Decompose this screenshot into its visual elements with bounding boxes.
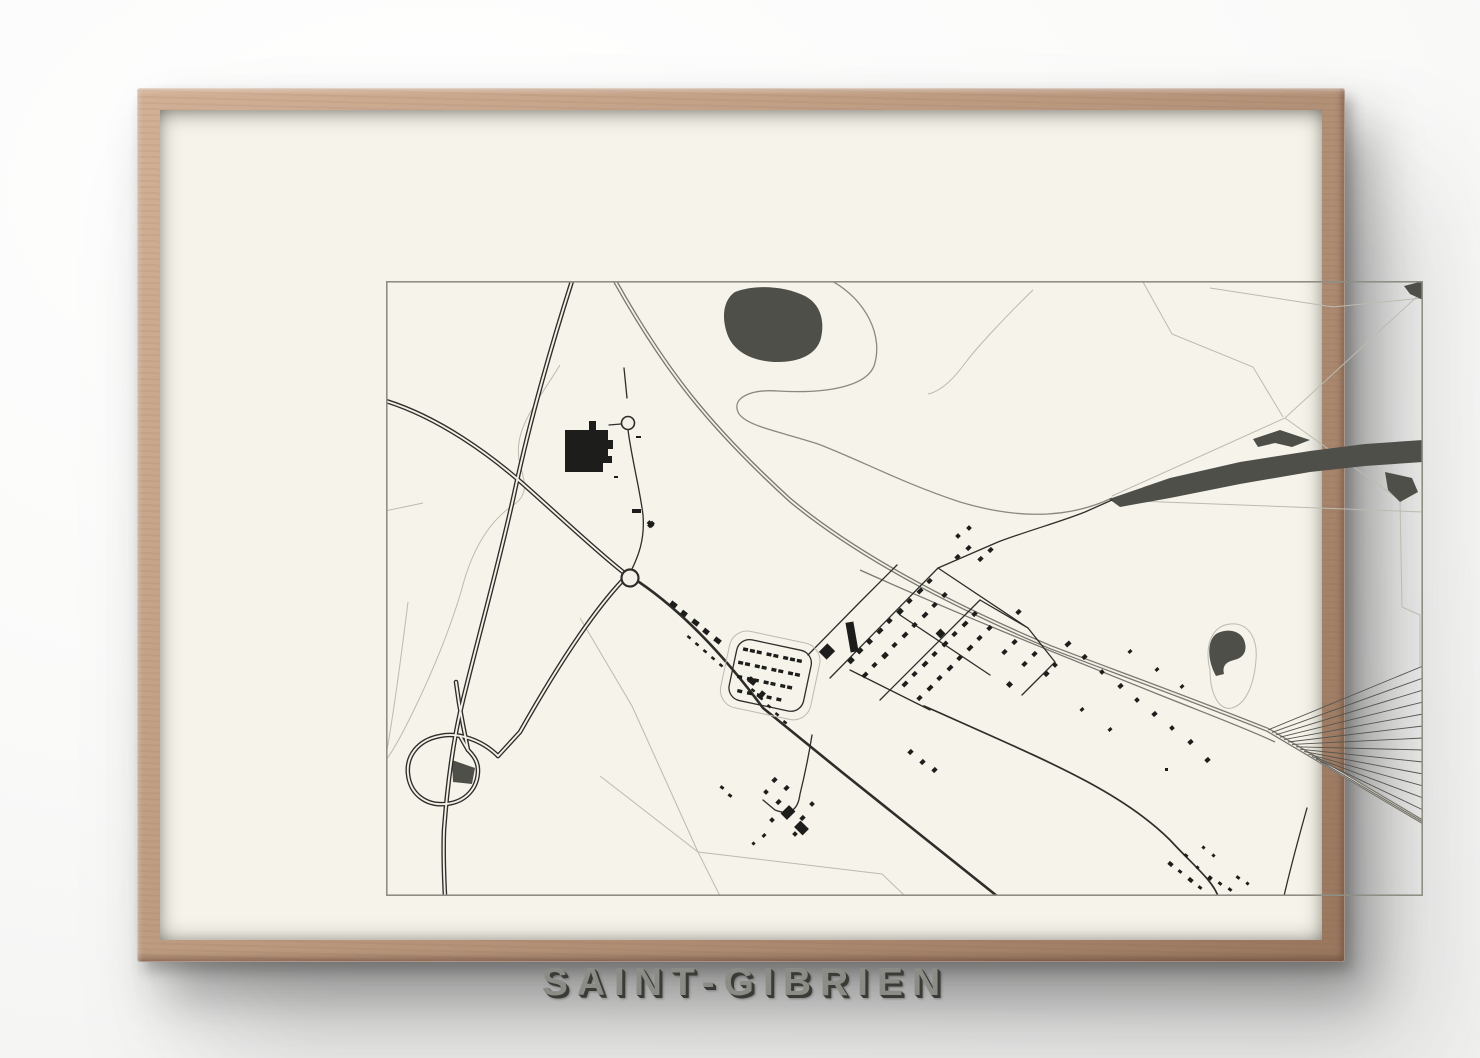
highway xyxy=(444,281,572,896)
road-northwest xyxy=(386,401,623,572)
map-svg xyxy=(386,281,1423,896)
factory-access xyxy=(628,430,643,571)
poster-title: SAINT-GIBRIEN xyxy=(160,961,1322,1005)
map-print xyxy=(386,281,1423,896)
yard-boundary-road xyxy=(1284,808,1307,896)
roundabout xyxy=(622,570,639,587)
wall: SAINT-GIBRIEN xyxy=(0,0,1480,1058)
mini-roundabout xyxy=(622,417,635,430)
roads-major xyxy=(386,281,623,896)
housing-estate xyxy=(717,628,823,723)
roads-minor xyxy=(609,368,1218,896)
village-buildings xyxy=(614,436,1250,892)
railway xyxy=(615,281,1423,822)
mat-board: SAINT-GIBRIEN xyxy=(160,110,1322,940)
woodland xyxy=(452,281,1423,784)
street-south xyxy=(763,735,812,812)
factory-building xyxy=(565,421,613,472)
picture-frame: SAINT-GIBRIEN xyxy=(137,88,1345,962)
interchange-link xyxy=(498,580,623,756)
road-east xyxy=(924,706,1218,896)
main-street xyxy=(639,582,997,896)
